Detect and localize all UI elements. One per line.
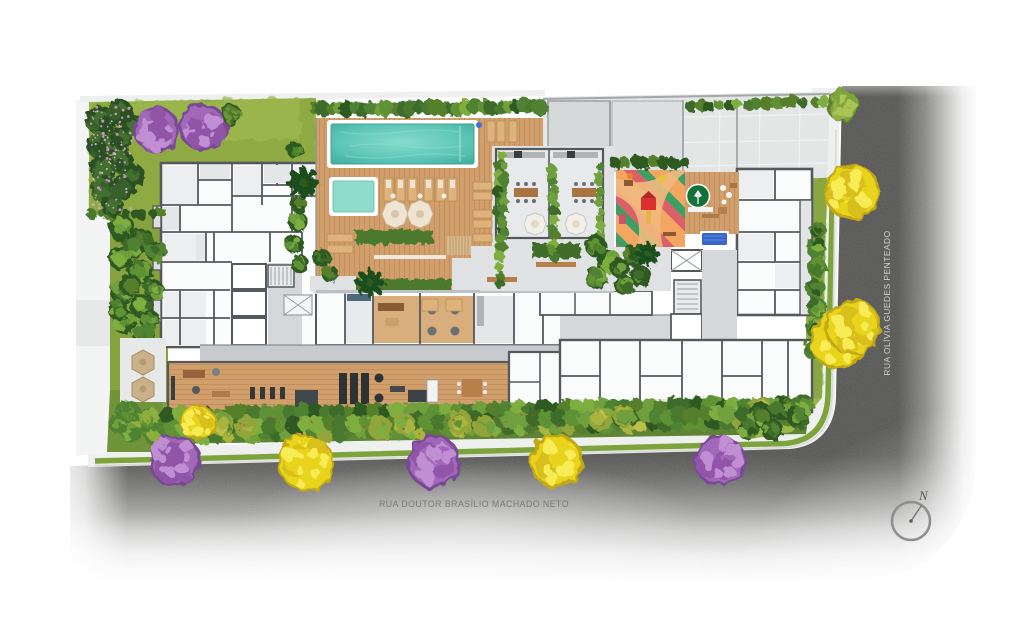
svg-text:RUA DOUTOR BRASÍLIO MACHADO NE: RUA DOUTOR BRASÍLIO MACHADO NETO — [379, 499, 569, 509]
svg-text:RUA OLÍVIA GUEDES PENTEADO: RUA OLÍVIA GUEDES PENTEADO — [882, 230, 892, 375]
svg-text:N: N — [918, 488, 929, 503]
